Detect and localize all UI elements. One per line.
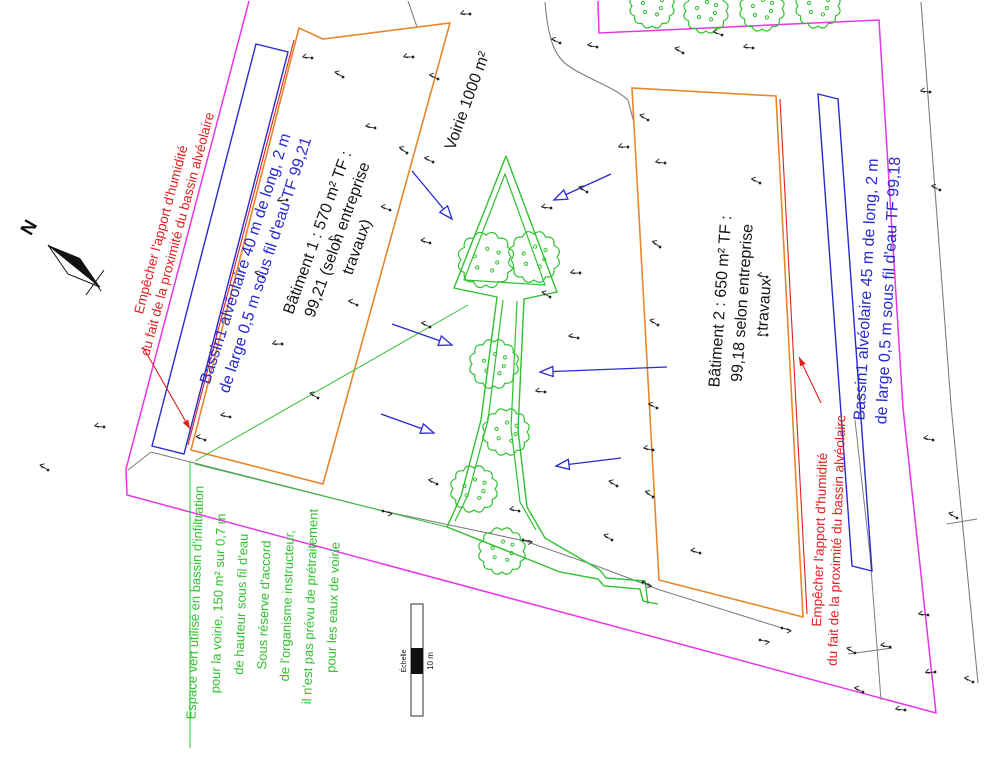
survey-mark (603, 533, 614, 542)
survey-mark (655, 157, 667, 166)
survey-mark (618, 141, 630, 151)
label-espace-vert-line: pour les eaux de voirie (323, 542, 343, 673)
label-bassin-2: Bassin1 alvéolaire 45 m de long, 2 mde l… (851, 155, 904, 425)
label-batiment-2: Bâtiment 2 : 650 m² TF :99,18 selon entr… (706, 215, 779, 391)
label-batiment-2-line: travaux (754, 278, 775, 332)
tree (483, 409, 529, 455)
flow-arrow (412, 171, 452, 219)
tree (630, 0, 674, 28)
survey-mark (302, 52, 314, 61)
survey-line-basin2 (855, 420, 881, 700)
survey-mark (643, 444, 654, 453)
survey-mark (381, 509, 392, 517)
survey-mark (398, 145, 410, 154)
label-espace-vert-line: de hauteur sous fil d'eau (231, 533, 251, 675)
espace-vert-outline-right (506, 156, 648, 604)
survey-mark (421, 237, 432, 245)
label-empecher-humidite-droite-line: du fait de la proximité du bassin alvéol… (825, 414, 849, 666)
batiment-1-outline (191, 23, 450, 484)
survey-mark (348, 299, 359, 307)
survey-mark (403, 51, 415, 61)
survey-mark (365, 122, 376, 131)
survey-mark (608, 479, 619, 488)
survey-mark (743, 42, 755, 51)
survey-mark (509, 505, 520, 514)
label-espace-vert-line: Sous réserve d'accord (254, 540, 273, 669)
survey-mark (713, 30, 723, 37)
label-espace-vert-line: Espace vert utilisé en bassin d'infiltra… (183, 486, 206, 720)
site-plan-svg: Empêcher l'apport d'humiditédu fait de l… (0, 0, 995, 768)
red-leader-left (143, 347, 190, 429)
label-empecher-humidite-gauche: Empêcher l'apport d'humiditédu fait de l… (121, 106, 217, 357)
north-arrow: N (17, 217, 104, 295)
survey-mark (421, 321, 432, 329)
tree (458, 232, 513, 287)
road-edge-curve (545, 2, 634, 123)
tree (479, 528, 525, 574)
flow-arrow (554, 174, 611, 200)
survey-mark (541, 202, 553, 211)
espace-vert-outline-left (447, 156, 658, 604)
north-label: N (17, 217, 42, 239)
survey-mark (272, 338, 284, 348)
road-edge-tick (408, 1, 417, 27)
survey-line-right-outer (921, 2, 978, 683)
site-plan-canvas: Empêcher l'apport d'humiditédu fait de l… (0, 0, 995, 768)
scale-bar: Échelle10 m (399, 604, 435, 716)
scale-value: 10 m (426, 652, 435, 670)
survey-mark (651, 239, 663, 248)
survey-mark (428, 478, 439, 486)
label-empecher-humidite-droite: Empêcher l'apport d'humiditédu fait de l… (808, 414, 849, 666)
survey-mark (931, 184, 942, 192)
survey-mark (948, 511, 959, 520)
survey-mark (920, 86, 932, 95)
survey-mark (691, 547, 702, 555)
red-leader-right (799, 357, 821, 403)
survey-mark (196, 435, 206, 442)
survey-mark (94, 421, 106, 430)
survey-mark (334, 70, 345, 79)
survey-mark (220, 411, 231, 420)
survey-mark (918, 609, 930, 618)
survey-mark (460, 8, 472, 18)
survey-mark (39, 463, 50, 472)
survey-mark (751, 177, 762, 185)
flow-arrow (392, 324, 452, 345)
tree (509, 232, 560, 283)
flow-arrow (381, 414, 434, 433)
label-voirie: Voirie 1000 m² (442, 49, 494, 152)
flow-arrow (556, 458, 621, 469)
tree (470, 340, 518, 388)
survey-mark (570, 267, 582, 277)
scale-label: Échelle (399, 649, 408, 672)
label-espace-vert-line: il n'est pas prévu de prétraitement (299, 508, 321, 704)
label-espace-vert-line: pour la voirie, 150 m² sur 0,7 m (207, 513, 228, 693)
label-espace-vert: Espace vert utilisé en bassin d'infiltra… (183, 486, 344, 725)
survey-mark (568, 332, 579, 341)
survey-mark (780, 626, 791, 634)
survey-mark (758, 637, 769, 646)
survey-mark (964, 676, 975, 684)
survey-line-corner (128, 452, 151, 470)
survey-mark (381, 205, 391, 212)
survey-mark (535, 386, 547, 395)
humidity-limit-line-2 (780, 99, 807, 614)
survey-mark (674, 46, 685, 55)
label-espace-vert-line: de l'organisme instructeur, (277, 530, 297, 682)
survey-mark (424, 156, 435, 164)
espace-vert-leader-lower (195, 464, 447, 527)
survey-mark (649, 318, 660, 327)
survey-mark (923, 434, 934, 443)
survey-mark (895, 704, 907, 713)
label-voirie-line: Voirie 1000 m² (442, 49, 494, 152)
survey-mark (639, 113, 650, 122)
survey-mark (587, 41, 598, 50)
